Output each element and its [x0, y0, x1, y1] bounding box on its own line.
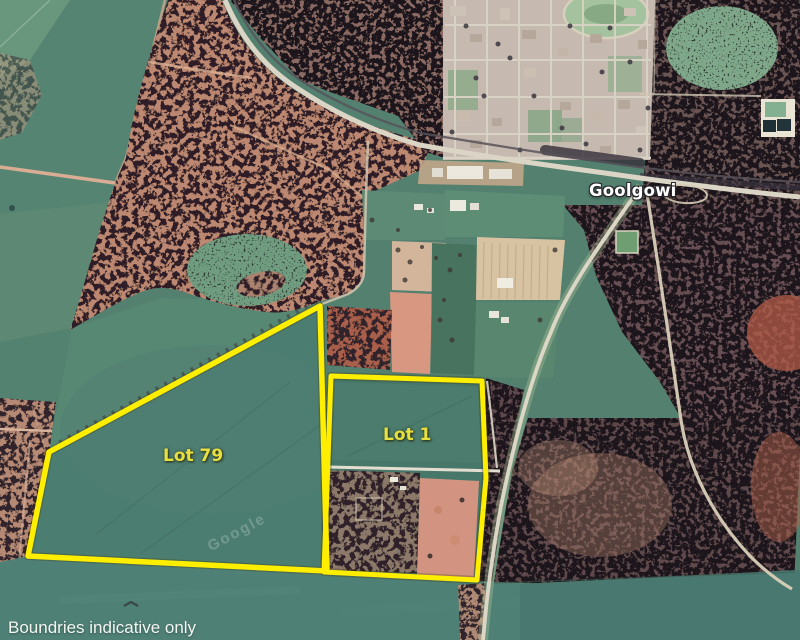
property-aerial-map: Lot 79 Lot 1 Goolgowi Google Boundries i… — [0, 0, 800, 640]
shed-building — [447, 166, 483, 179]
green-paddock-square — [616, 231, 638, 253]
satellite-imagery — [0, 0, 800, 640]
